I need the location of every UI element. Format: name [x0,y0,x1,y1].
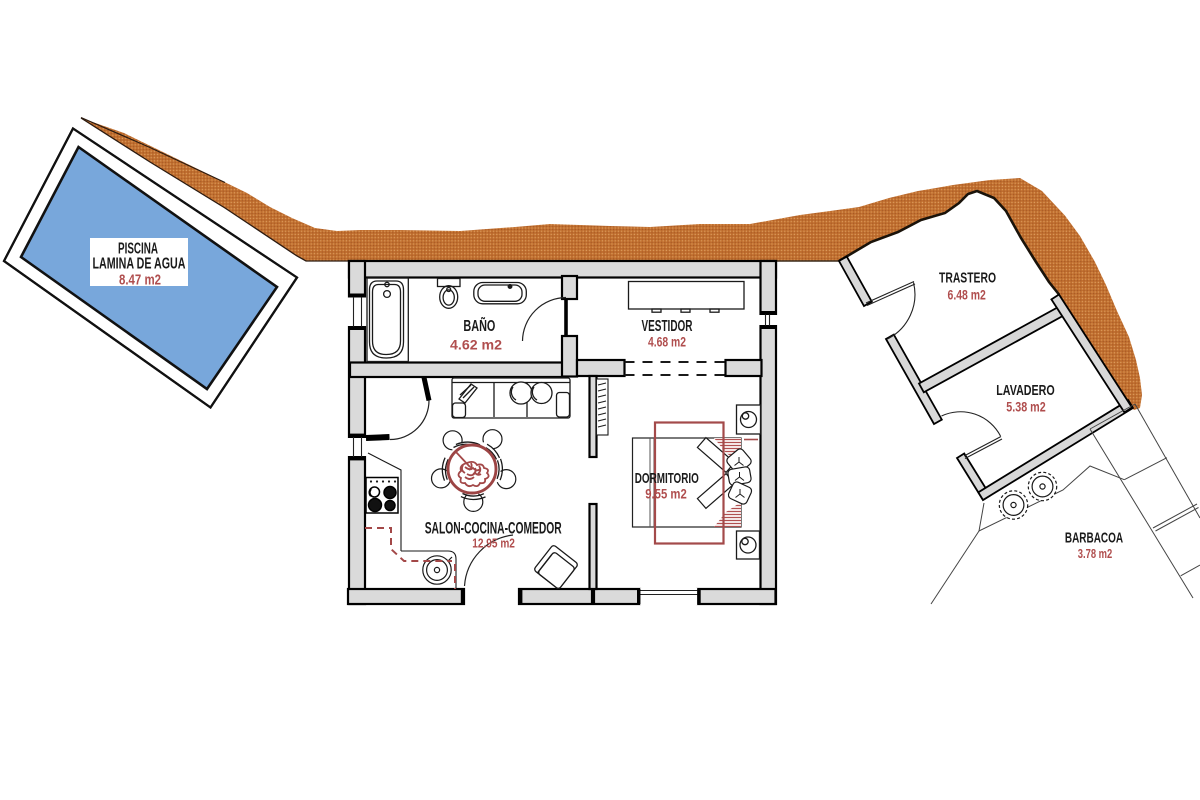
svg-text:8.47 m2: 8.47 m2 [119,273,161,289]
svg-text:VESTIDOR: VESTIDOR [642,318,693,335]
svg-text:LAVADERO: LAVADERO [996,383,1055,399]
svg-text:4.68 m2: 4.68 m2 [648,335,686,350]
svg-text:BAÑO: BAÑO [463,317,495,335]
svg-text:6.48 m2: 6.48 m2 [948,288,986,303]
svg-text:12.95 m2: 12.95 m2 [472,535,515,550]
svg-text:DORMITORIO: DORMITORIO [635,471,699,487]
svg-text:5.38 m2: 5.38 m2 [1006,400,1045,415]
svg-text:4.62 m2: 4.62 m2 [450,337,502,352]
svg-text:BARBACOA: BARBACOA [1065,529,1123,546]
svg-text:LAMINA DE AGUA: LAMINA DE AGUA [93,256,186,273]
svg-text:3.78 m2: 3.78 m2 [1078,546,1113,561]
svg-text:TRASTERO: TRASTERO [939,270,996,286]
svg-text:9.55 m2: 9.55 m2 [645,487,687,502]
